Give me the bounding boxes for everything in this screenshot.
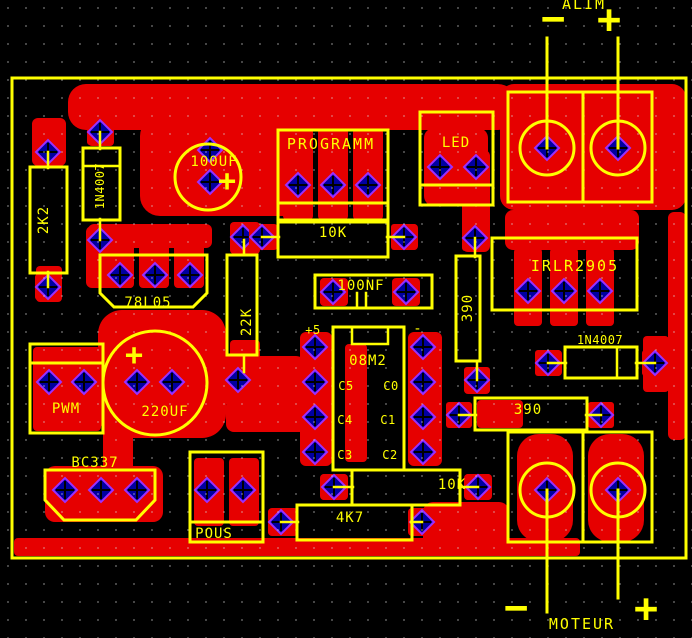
pad[interactable] [285,172,311,198]
label-pin-c3: C3 [337,448,352,462]
label-100nf[interactable]: 100NF [337,278,384,294]
pad[interactable] [124,477,150,503]
label-2k2[interactable]: 2K2 [36,206,52,234]
pad[interactable] [302,369,328,395]
pad[interactable] [88,477,114,503]
label-390-horizontal[interactable]: 390 [514,402,542,418]
label-led[interactable]: LED [442,135,470,151]
copper-trace[interactable] [668,212,686,440]
label-ic-minus: - [413,321,422,337]
pad[interactable] [225,367,251,393]
alim-plus-mark: + [597,0,621,43]
pad[interactable] [36,369,62,395]
label-pin-c1: C1 [380,413,395,427]
pad[interactable] [71,369,97,395]
plus-mark-100uf: + [218,164,236,199]
pad[interactable] [515,278,541,304]
pad[interactable] [463,154,489,180]
pad[interactable] [427,154,453,180]
diode-1n4007-right-outline[interactable] [565,347,637,378]
label-plus5: +5 [305,323,320,337]
pad[interactable] [142,262,168,288]
label-pin-c0: C0 [383,379,398,393]
label-moteur: MOTEUR [549,615,615,633]
label-bc337[interactable]: BC337 [71,455,118,471]
pad[interactable] [302,334,328,360]
label-pin-c2: C2 [382,448,397,462]
pad[interactable] [52,477,78,503]
label-10k-top[interactable]: 10K [319,225,347,241]
label-programm[interactable]: PROGRAMM [287,135,375,153]
label-390-vertical[interactable]: 390 [460,294,476,322]
label-pin-c5: C5 [338,379,353,393]
label-10k-bottom[interactable]: 10K [438,477,466,493]
label-78l05[interactable]: 78L05 [124,295,171,311]
copper-trace[interactable] [206,356,306,404]
alim-minus-mark: − [541,0,565,42]
pad[interactable] [230,477,256,503]
label-1n4007-left[interactable]: 1N4007 [93,163,107,209]
copper-trace[interactable] [505,210,639,250]
pad[interactable] [410,439,436,465]
pad[interactable] [355,172,381,198]
label-pous[interactable]: POUS [195,526,233,542]
pad[interactable] [320,172,346,198]
pad[interactable] [587,278,613,304]
label-22k[interactable]: 22K [239,308,255,336]
copper-pour-alim[interactable] [500,84,686,210]
pad[interactable] [551,278,577,304]
pcb-canvas: 2K2 1N4007 100UF + PROGRAMM 10K LED 78L0… [0,0,692,638]
label-ic-08m2[interactable]: 08M2 [349,353,387,369]
label-220uf[interactable]: 220UF [141,404,188,420]
pad[interactable] [194,477,220,503]
pad[interactable] [410,334,436,360]
moteur-plus-mark: + [634,586,658,632]
label-irlr2905[interactable]: IRLR2905 [531,257,619,275]
pad[interactable] [159,369,185,395]
label-pin-c4: C4 [337,413,352,427]
pad[interactable] [302,439,328,465]
moteur-minus-mark: − [504,585,528,631]
plus-mark-220uf: + [125,338,143,373]
pad[interactable] [393,279,419,305]
copper-layer [14,84,686,556]
pad[interactable] [107,262,133,288]
pad[interactable] [410,369,436,395]
label-1n4007-right[interactable]: 1N4007 [577,333,623,347]
pad[interactable] [177,262,203,288]
pcb-layout-view: 2K2 1N4007 100UF + PROGRAMM 10K LED 78L0… [0,0,692,638]
pad[interactable] [410,404,436,430]
copper-trace[interactable] [226,398,308,432]
label-pwm[interactable]: PWM [52,401,80,417]
label-4k7[interactable]: 4K7 [336,510,364,526]
pad[interactable] [302,404,328,430]
